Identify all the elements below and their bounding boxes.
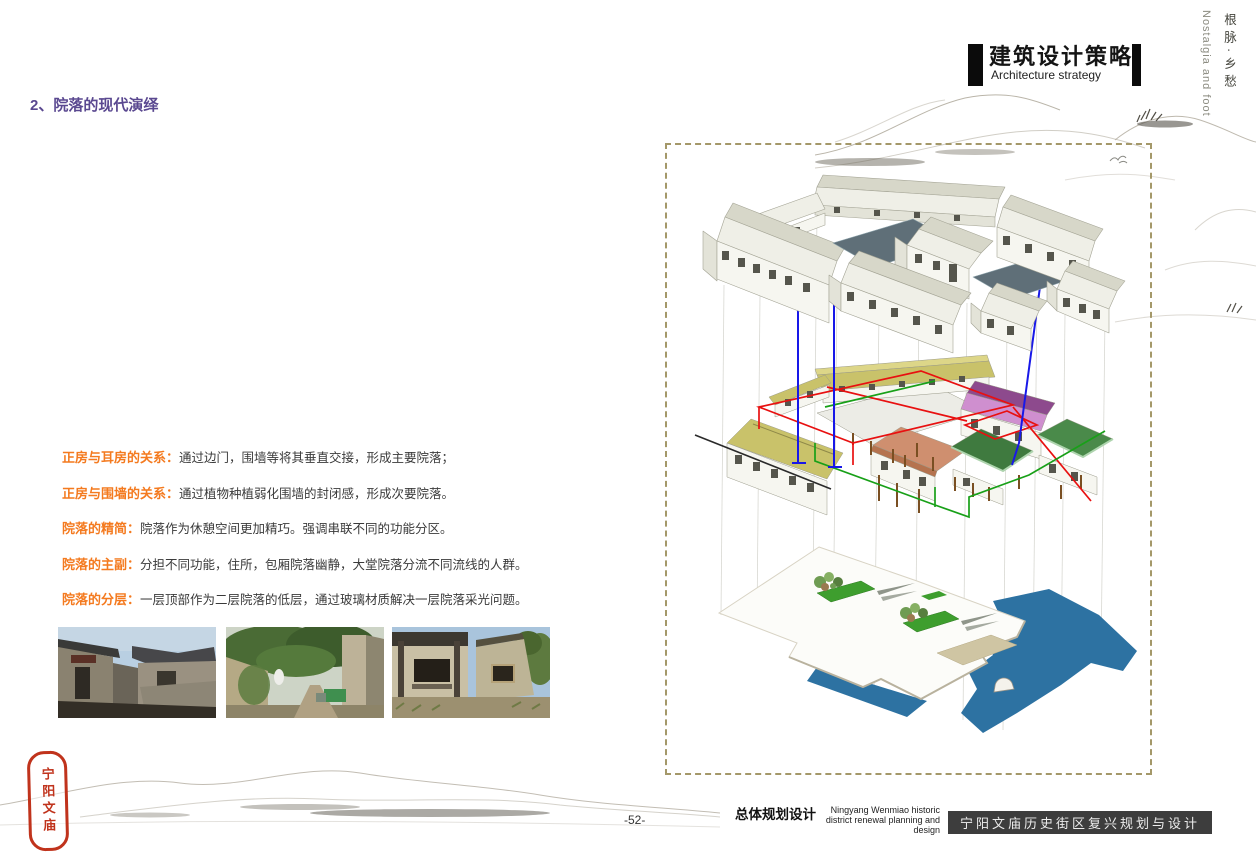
footer-series-en-line2: district renewal planning and design <box>816 815 940 835</box>
note-label: 正房与围墙的关系： <box>62 486 179 501</box>
note-label: 院落的主副： <box>62 557 140 572</box>
note-text: 分担不同功能，住所，包厢院落幽静，大堂院落分流不同流线的人群。 <box>140 558 528 572</box>
diagram-site-layer <box>719 547 1137 733</box>
photo-old-courtyard-1 <box>58 627 216 718</box>
note-label: 正房与耳房的关系： <box>62 450 179 465</box>
header-title-cn: 建筑设计策略 <box>989 39 1133 71</box>
exploded-axonometric-diagram <box>665 143 1152 775</box>
seal-text: 宁阳文庙 <box>38 767 59 835</box>
diagram-middle-layer <box>727 355 1113 515</box>
photo-old-courtyard-3 <box>392 627 550 718</box>
note-text: 院落作为休憩空间更加精巧。强调串联不同的功能分区。 <box>140 522 453 536</box>
header-bar-left <box>968 44 983 86</box>
note-item: 正房与耳房的关系：通过边门，围墙等将其垂直交接，形成主要院落； <box>62 447 454 466</box>
note-text: 通过植物种植弱化围墙的封闭感，形成次要院落。 <box>179 487 454 501</box>
ink-landscape-bottom <box>0 755 720 855</box>
note-label: 院落的分层： <box>62 592 140 607</box>
corner-text-cn: 根脉·乡愁 <box>1220 13 1239 92</box>
note-item: 院落的主副：分担不同功能，住所，包厢院落幽静，大堂院落分流不同流线的人群。 <box>62 554 528 573</box>
red-seal-stamp: 宁阳文庙 <box>27 750 70 851</box>
footer-series-en-line1: Ningyang Wenmiao historic <box>816 805 940 815</box>
photo-old-courtyard-2 <box>226 627 384 718</box>
note-label: 院落的精简： <box>62 521 140 536</box>
section-title: 2、院落的现代演绎 <box>30 94 158 115</box>
document-page: 建筑设计策略 Architecture strategy 根脉·乡愁 Nosta… <box>0 0 1256 856</box>
note-item: 院落的分层：一层顶部作为二层院落的低层，通过玻璃材质解决一层院落采光问题。 <box>62 589 528 608</box>
footer-series-cn: 总体规划设计 <box>735 803 816 823</box>
header-bar-right <box>1132 44 1141 86</box>
footer-banner: 宁阳文庙历史街区复兴规划与设计 <box>948 811 1212 834</box>
note-item: 正房与围墙的关系：通过植物种植弱化围墙的封闭感，形成次要院落。 <box>62 483 454 502</box>
bird-icon <box>1110 156 1127 163</box>
footer-series-en: Ningyang Wenmiao historic district renew… <box>816 805 940 835</box>
diagram-top-layer <box>703 175 1125 353</box>
note-text: 通过边门，围墙等将其垂直交接，形成主要院落； <box>179 451 454 465</box>
header-title-en: Architecture strategy <box>991 68 1101 82</box>
note-item: 院落的精简：院落作为休憩空间更加精巧。强调串联不同的功能分区。 <box>62 518 453 537</box>
diagram-canvas <box>667 145 1150 773</box>
corner-text-en: Nostalgia and foot <box>1200 10 1212 117</box>
page-number: -52- <box>624 813 645 827</box>
note-text: 一层顶部作为二层院落的低层，通过玻璃材质解决一层院落采光问题。 <box>140 593 528 607</box>
